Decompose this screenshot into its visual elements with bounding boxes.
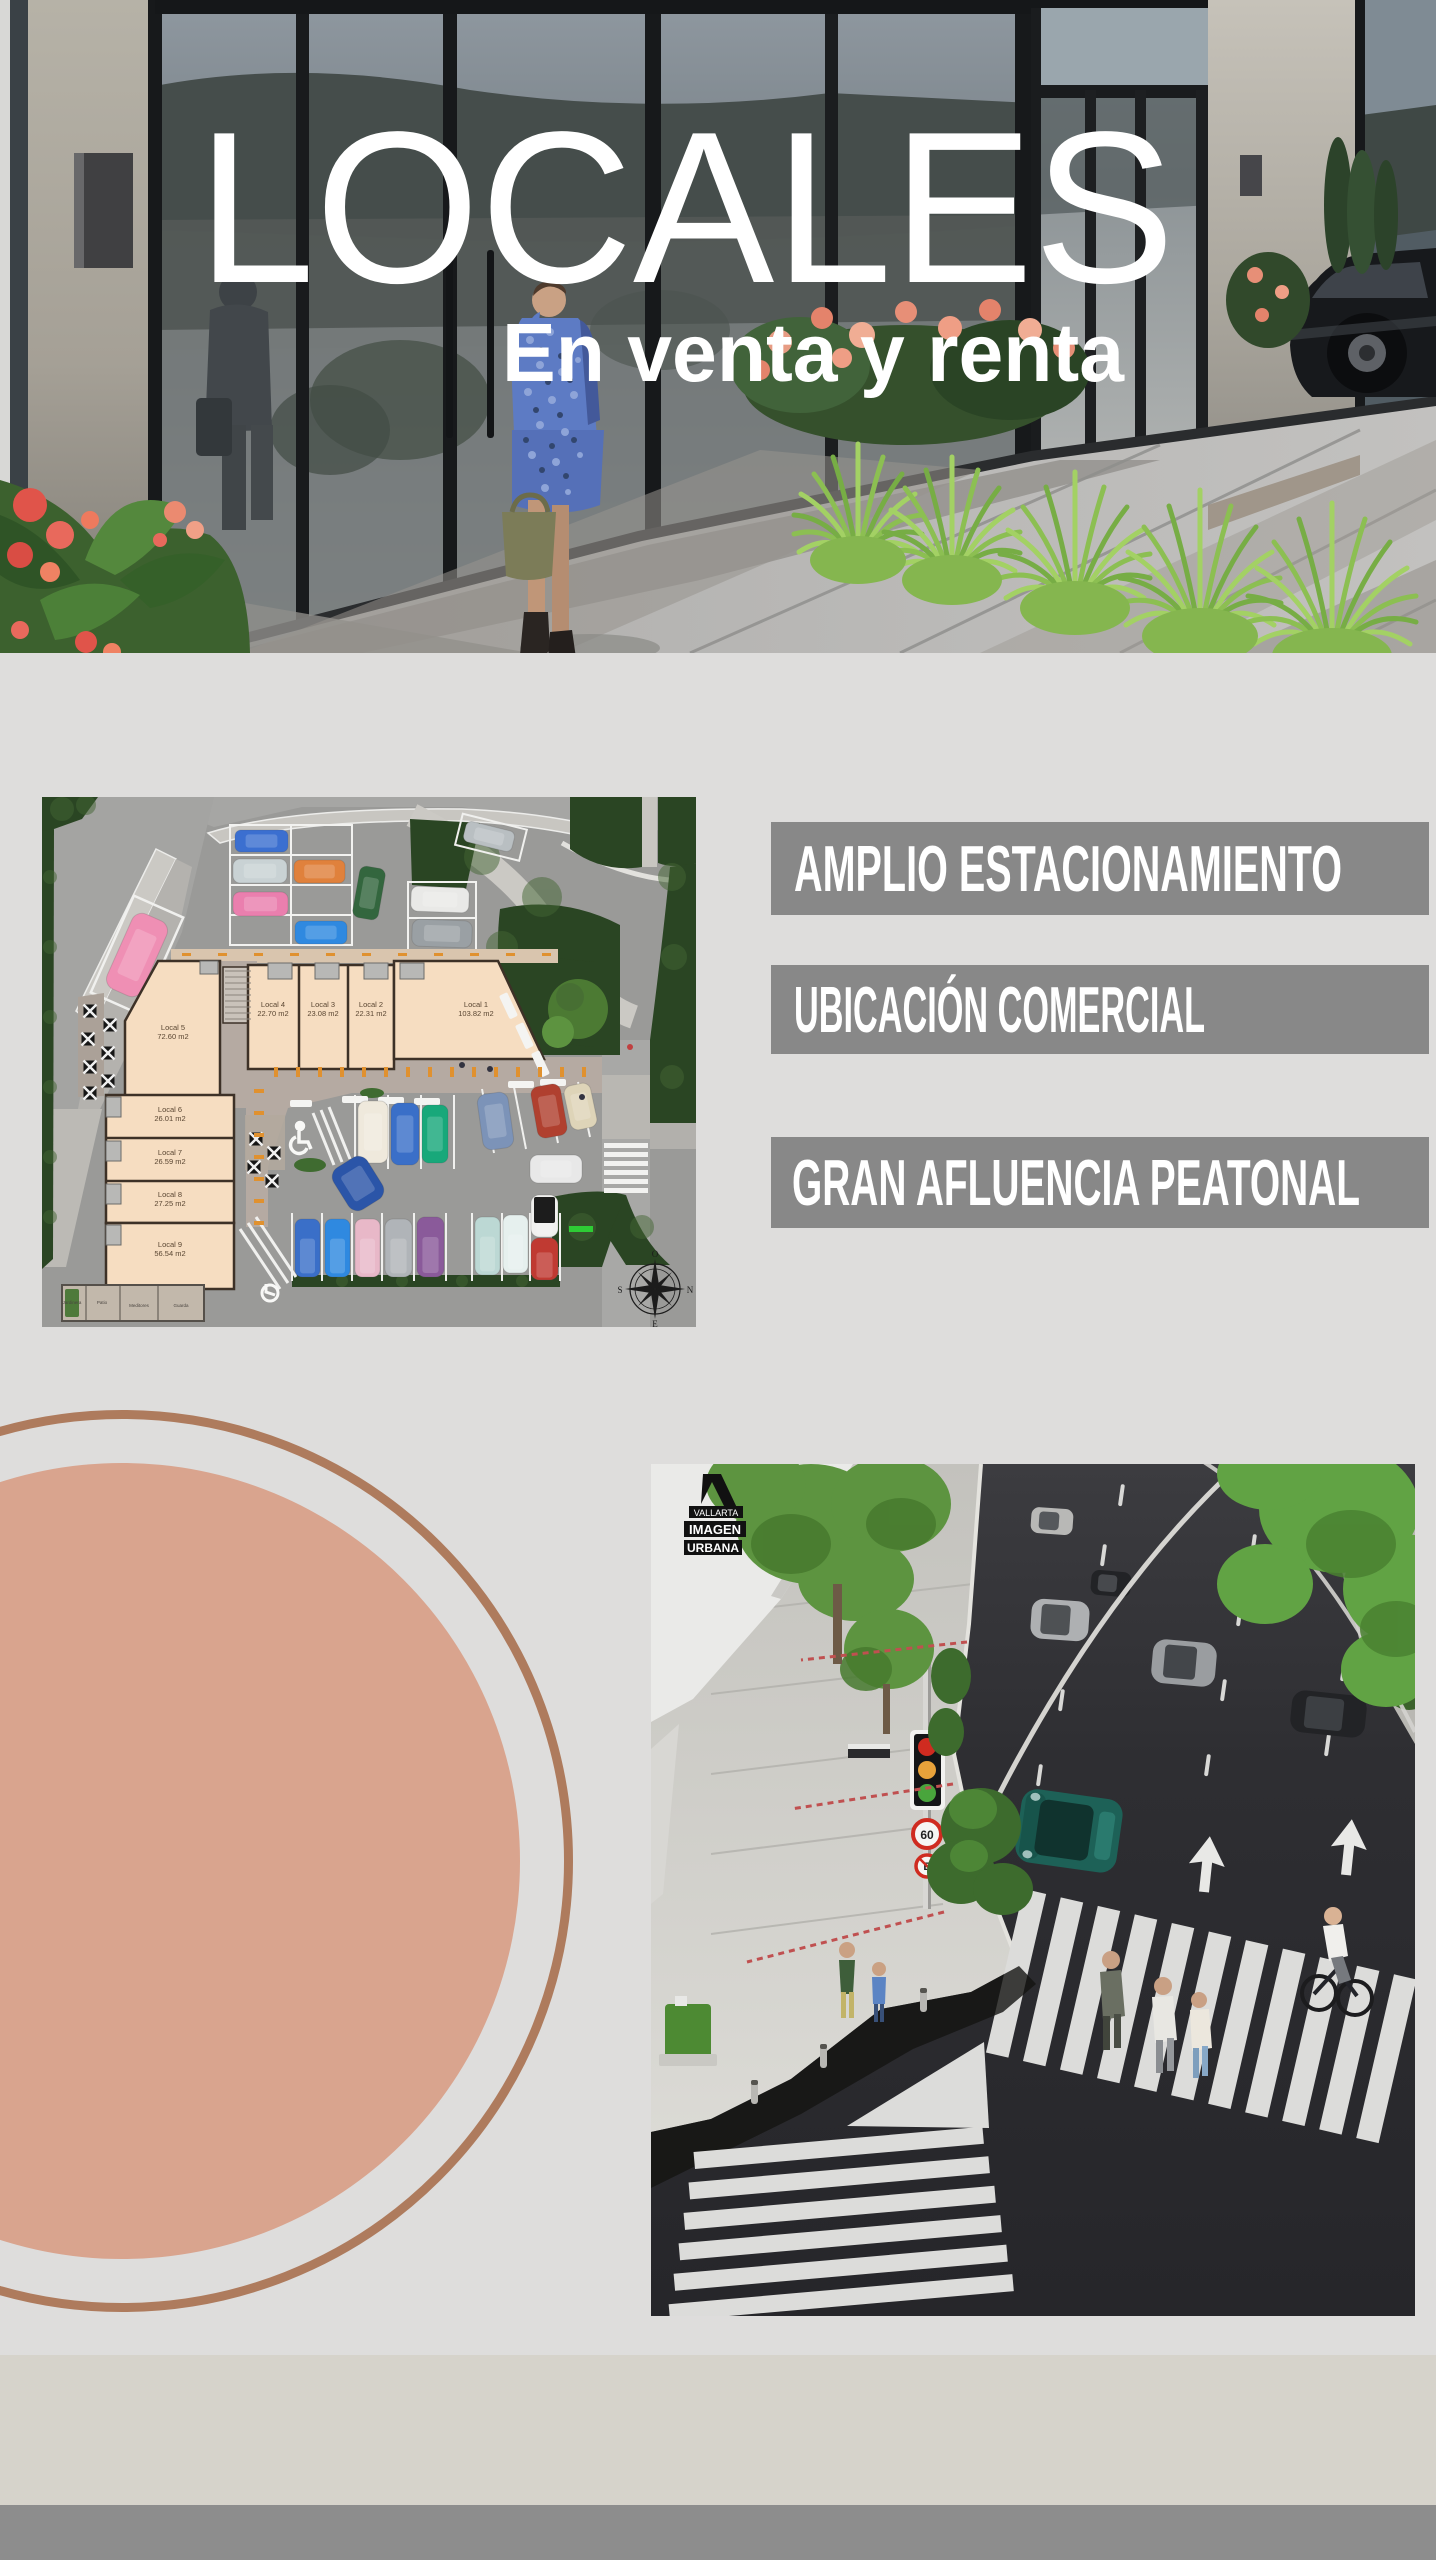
svg-text:AMPLIO ESTACIONAMIENTO: AMPLIO ESTACIONAMIENTO — [794, 832, 1342, 905]
svg-text:Local 2: Local 2 — [359, 1000, 383, 1009]
svg-text:S: S — [617, 1285, 622, 1295]
svg-text:VALLARTA: VALLARTA — [694, 1508, 739, 1518]
svg-text:Local 3: Local 3 — [311, 1000, 335, 1009]
svg-text:60: 60 — [920, 1828, 934, 1842]
svg-text:Local 9: Local 9 — [158, 1240, 182, 1249]
svg-text:23.08 m2: 23.08 m2 — [307, 1009, 338, 1018]
svg-text:Local 6: Local 6 — [158, 1105, 182, 1114]
svg-text:Patio: Patio — [97, 1300, 108, 1305]
svg-text:Local 4: Local 4 — [261, 1000, 285, 1009]
svg-text:Local 5: Local 5 — [161, 1023, 185, 1032]
svg-text:En venta y renta: En venta y renta — [502, 306, 1125, 399]
svg-text:URBANA: URBANA — [687, 1541, 739, 1555]
svg-text:Local 8: Local 8 — [158, 1190, 182, 1199]
svg-text:Local 1: Local 1 — [464, 1000, 488, 1009]
svg-text:56.54 m2: 56.54 m2 — [154, 1249, 185, 1258]
svg-text:GRAN AFLUENCIA PEATONAL: GRAN AFLUENCIA PEATONAL — [792, 1146, 1360, 1219]
svg-text:IMAGEN: IMAGEN — [689, 1522, 741, 1537]
svg-text:26.01 m2: 26.01 m2 — [154, 1114, 185, 1123]
svg-text:Guarda: Guarda — [173, 1303, 189, 1308]
svg-text:UBICACIÓN COMERCIAL: UBICACIÓN COMERCIAL — [794, 973, 1205, 1046]
svg-text:27.25 m2: 27.25 m2 — [154, 1199, 185, 1208]
svg-text:E: E — [652, 1319, 658, 1327]
svg-text:N: N — [687, 1285, 694, 1295]
svg-text:103.82 m2: 103.82 m2 — [458, 1009, 493, 1018]
svg-text:LOCALES: LOCALES — [197, 86, 1175, 328]
svg-text:Local 7: Local 7 — [158, 1148, 182, 1157]
svg-text:22.70 m2: 22.70 m2 — [257, 1009, 288, 1018]
svg-text:22.31 m2: 22.31 m2 — [355, 1009, 386, 1018]
svg-text:26.59 m2: 26.59 m2 — [154, 1157, 185, 1166]
svg-text:O: O — [652, 1249, 659, 1259]
svg-text:72.60 m2: 72.60 m2 — [157, 1032, 188, 1041]
svg-text:Meditores: Meditores — [129, 1303, 150, 1308]
svg-text:Jardinera: Jardinera — [63, 1300, 82, 1305]
